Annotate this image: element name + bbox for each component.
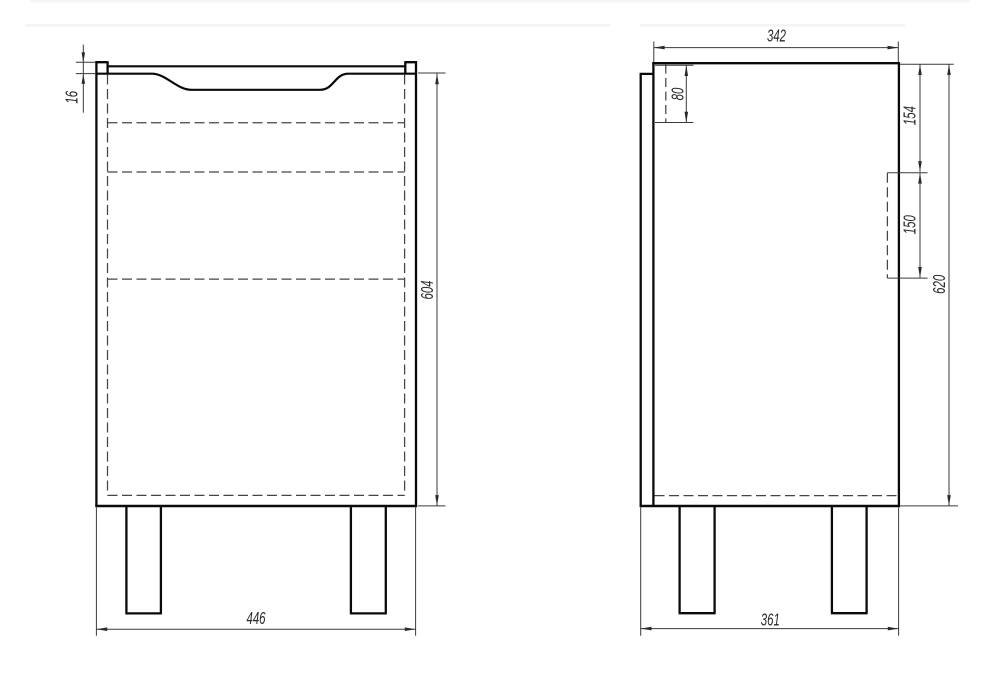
svg-text:80: 80 xyxy=(669,87,688,100)
svg-text:620: 620 xyxy=(931,274,950,294)
svg-text:361: 361 xyxy=(761,611,780,630)
svg-text:446: 446 xyxy=(246,610,266,629)
svg-text:342: 342 xyxy=(767,27,787,46)
svg-text:16: 16 xyxy=(63,90,82,103)
svg-text:150: 150 xyxy=(901,215,920,235)
svg-text:604: 604 xyxy=(419,280,438,299)
svg-text:154: 154 xyxy=(901,106,920,125)
